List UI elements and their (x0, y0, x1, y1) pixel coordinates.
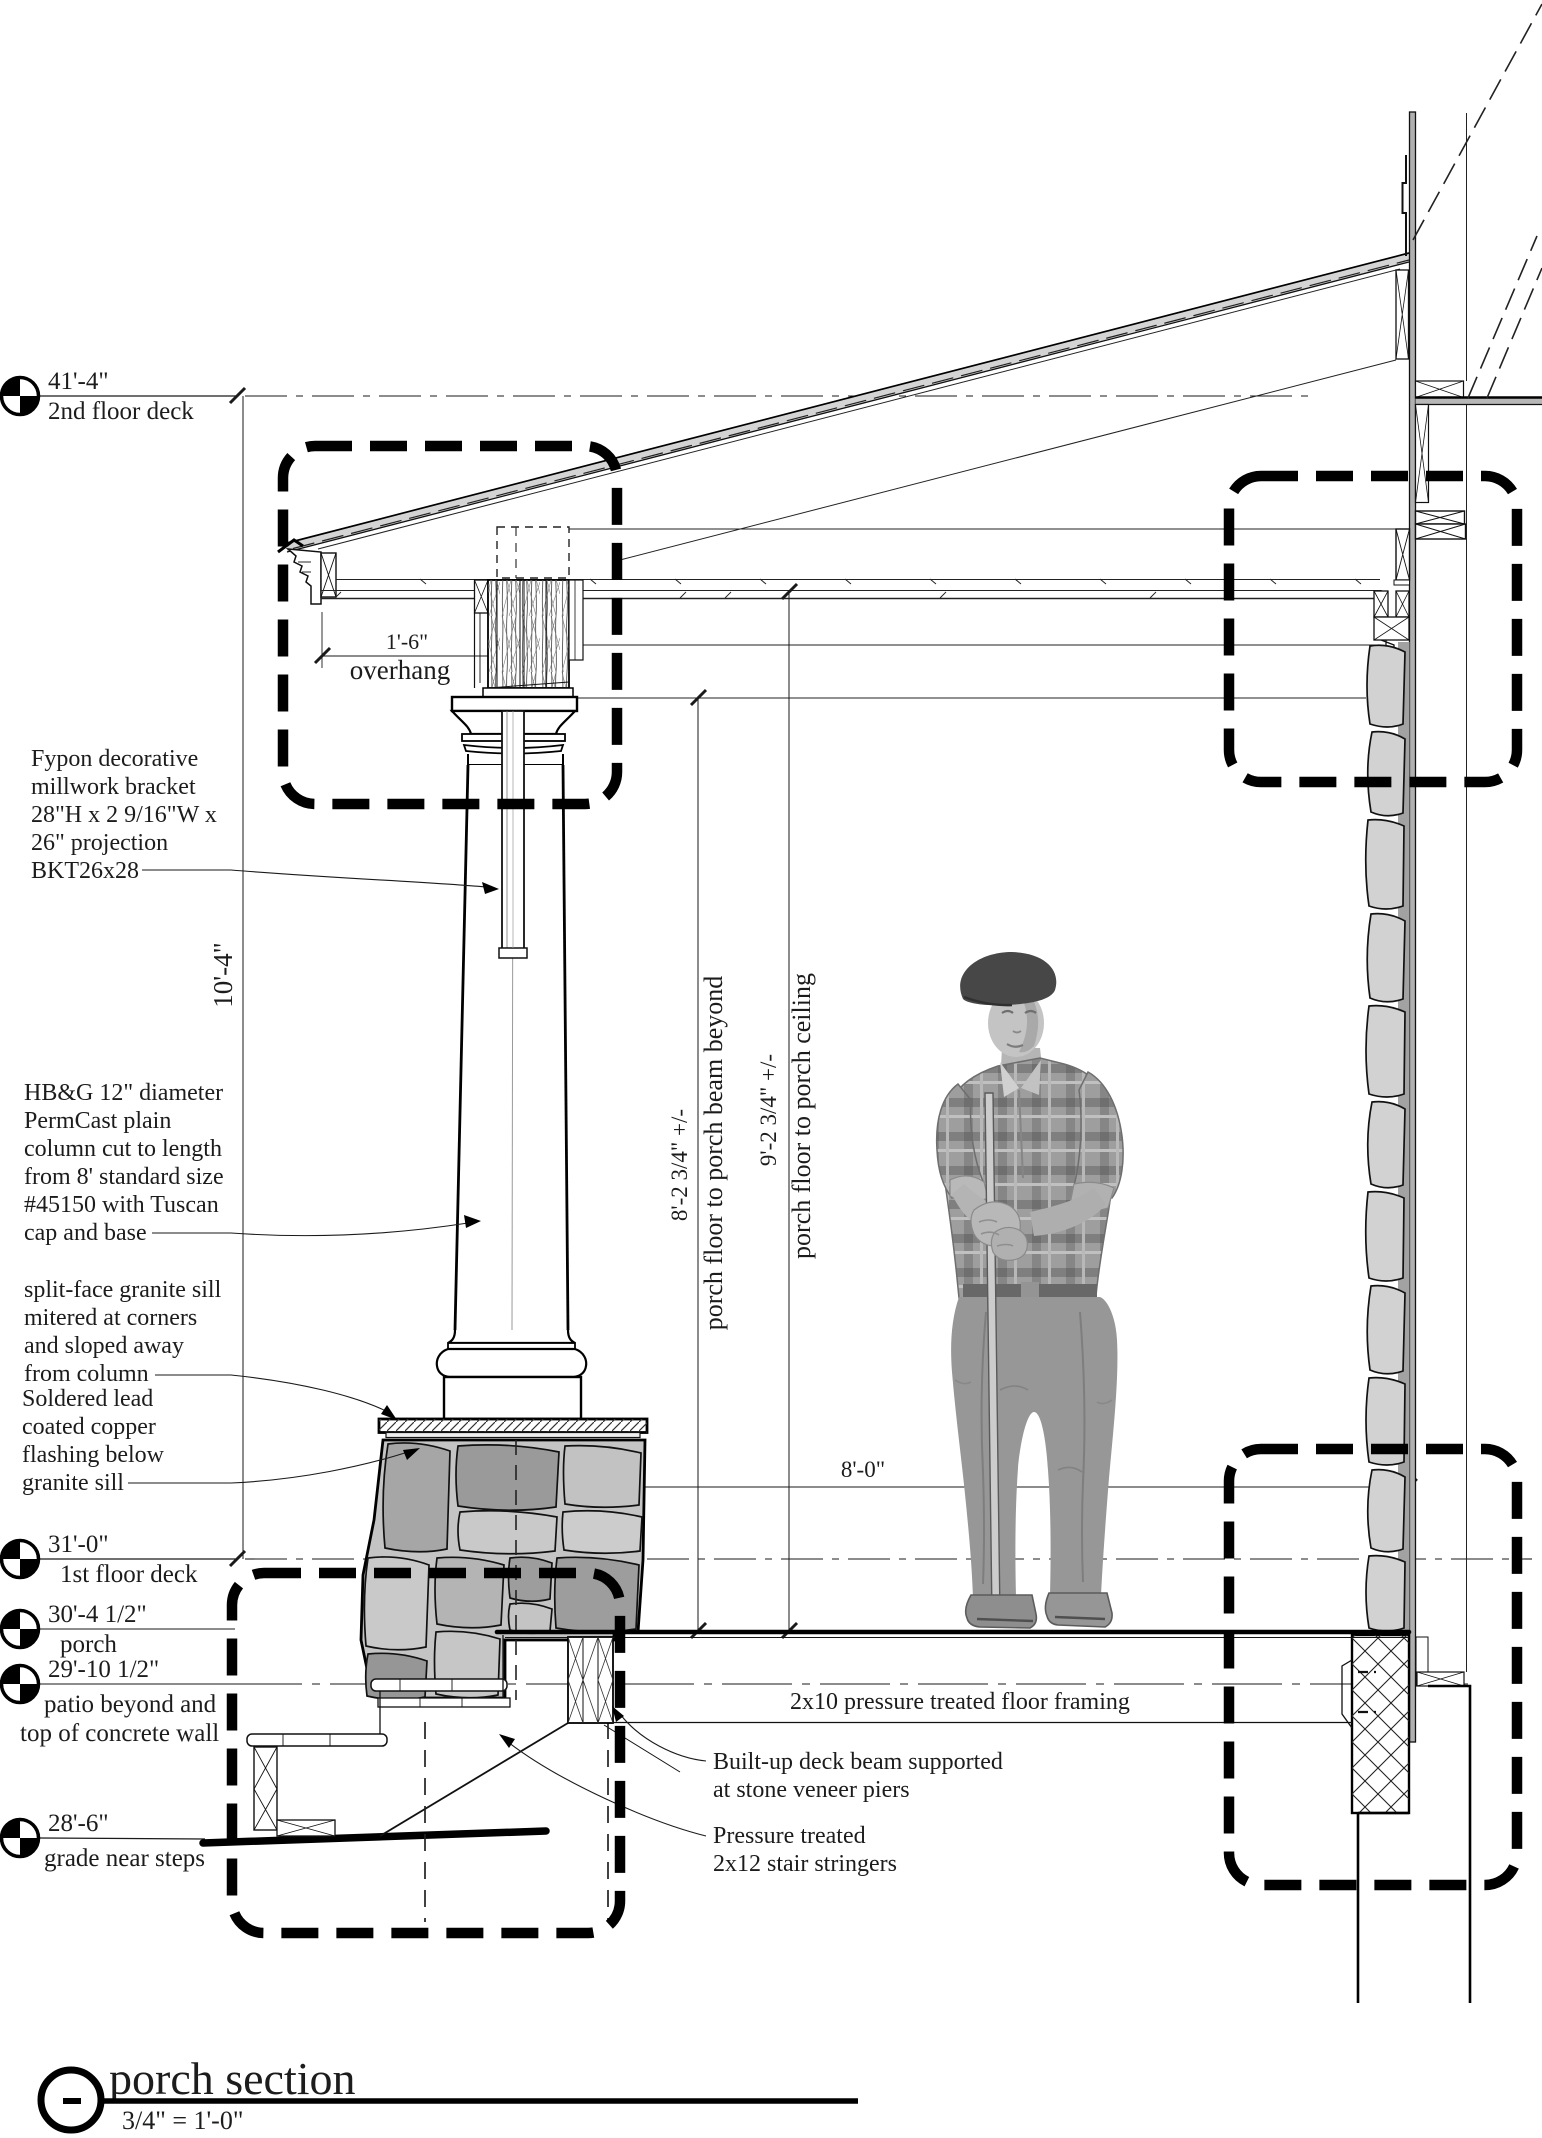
svg-text:porch floor to porch beam beyo: porch floor to porch beam beyond (699, 976, 728, 1331)
svg-text:10'-4": 10'-4" (208, 942, 238, 1007)
svg-text:2x10 pressure treated floor fr: 2x10 pressure treated floor framing (790, 1689, 1130, 1715)
svg-text:Soldered lead: Soldered lead (22, 1386, 153, 1412)
svg-text:Built-up deck beam supported: Built-up deck beam supported (713, 1749, 1003, 1775)
svg-text:3/4" = 1'-0": 3/4" = 1'-0" (122, 2106, 243, 2135)
svg-text:from column: from column (24, 1361, 149, 1387)
svg-text:porch section: porch section (109, 2053, 356, 2104)
svg-text:and sloped away: and sloped away (24, 1333, 184, 1359)
svg-text:patio beyond and: patio beyond and (44, 1691, 217, 1718)
svg-text:millwork bracket: millwork bracket (31, 774, 196, 800)
svg-text:granite sill: granite sill (22, 1470, 124, 1496)
svg-text:top of concrete wall: top of concrete wall (20, 1720, 219, 1747)
svg-text:coated copper: coated copper (22, 1414, 156, 1440)
svg-text:26" projection: 26" projection (31, 830, 168, 856)
svg-text:Fypon decorative: Fypon decorative (31, 746, 198, 772)
svg-text:41'-4": 41'-4" (48, 368, 109, 395)
svg-text:29'-10 1/2": 29'-10 1/2" (48, 1656, 159, 1683)
svg-text:column cut to length: column cut to length (24, 1136, 222, 1162)
svg-text:flashing below: flashing below (22, 1442, 165, 1468)
svg-text:#45150 with Tuscan: #45150 with Tuscan (24, 1192, 219, 1218)
svg-text:9'-2 3/4" +/-: 9'-2 3/4" +/- (756, 1054, 781, 1166)
svg-text:2x12 stair stringers: 2x12 stair stringers (713, 1851, 897, 1877)
svg-text:28"H x 2 9/16"W x: 28"H x 2 9/16"W x (31, 802, 217, 828)
svg-text:2nd floor deck: 2nd floor deck (48, 398, 194, 425)
svg-text:at stone veneer piers: at stone veneer piers (713, 1777, 910, 1803)
svg-text:Pressure treated: Pressure treated (713, 1823, 866, 1849)
svg-text:mitered at corners: mitered at corners (24, 1305, 197, 1331)
svg-text:PermCast plain: PermCast plain (24, 1108, 171, 1134)
svg-text:1st floor deck: 1st floor deck (60, 1561, 198, 1588)
svg-text:split-face granite sill: split-face granite sill (24, 1277, 222, 1303)
svg-text:30'-4 1/2": 30'-4 1/2" (48, 1601, 147, 1628)
svg-text:31'-0": 31'-0" (48, 1531, 109, 1558)
svg-text:8'-0": 8'-0" (841, 1457, 885, 1482)
svg-text:overhang: overhang (350, 655, 450, 685)
svg-text:BKT26x28: BKT26x28 (31, 858, 139, 884)
svg-text:1'-6": 1'-6" (386, 629, 428, 654)
svg-text:grade near steps: grade near steps (44, 1845, 205, 1872)
svg-text:from 8' standard size: from 8' standard size (24, 1164, 224, 1190)
svg-text:porch floor to porch ceiling: porch floor to porch ceiling (787, 973, 816, 1259)
svg-text:8'-2 3/4" +/-: 8'-2 3/4" +/- (667, 1109, 692, 1221)
svg-text:HB&G 12" diameter: HB&G 12" diameter (24, 1080, 223, 1106)
svg-text:28'-6": 28'-6" (48, 1810, 109, 1837)
svg-text:cap and base: cap and base (24, 1220, 147, 1246)
svg-text:porch: porch (60, 1631, 117, 1658)
